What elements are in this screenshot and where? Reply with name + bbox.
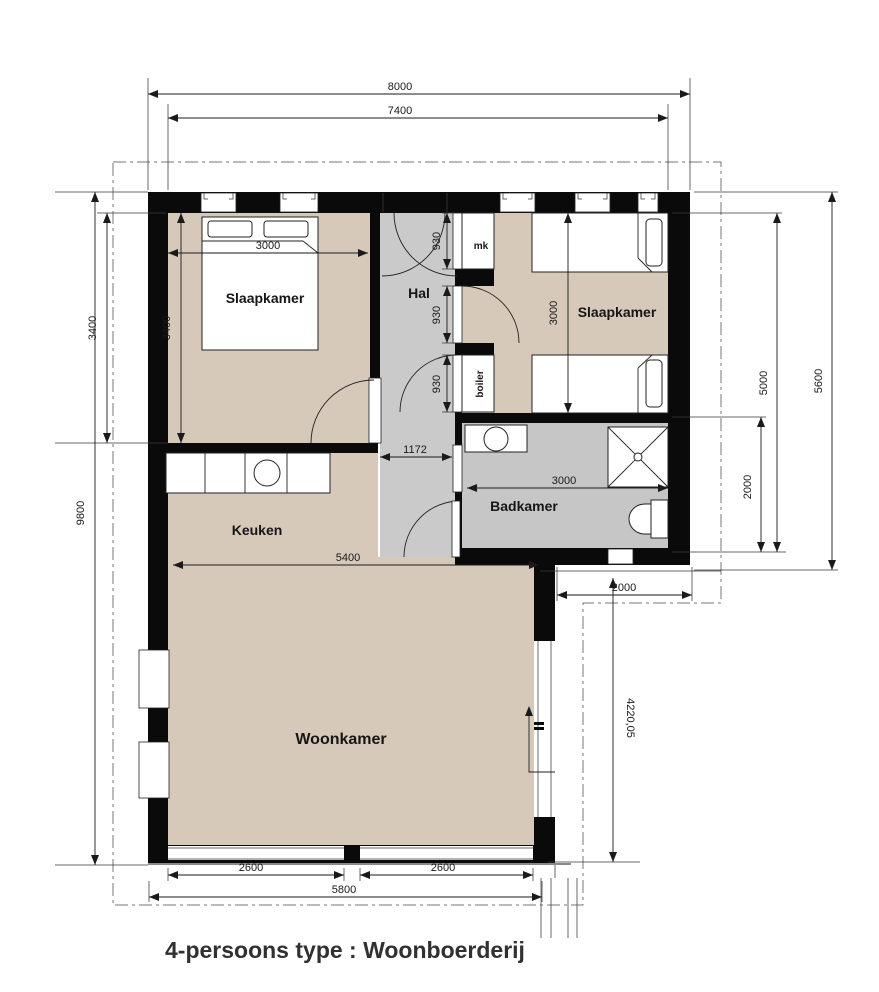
wall-bedroom-kitchen: [148, 443, 378, 453]
room-label-hall: Hal: [408, 285, 430, 301]
single-bed-bottom: [532, 355, 668, 413]
room-label-bathroom: Badkamer: [490, 498, 558, 514]
window-left-1: [139, 650, 169, 708]
dim-label-2600-left: 2600: [239, 862, 263, 874]
room-label-bedroom-right: Slaapkamer: [578, 304, 657, 320]
dim-label-3400-outer: 3400: [87, 316, 99, 340]
dim-label-5800: 5800: [332, 884, 356, 896]
kitchen-sink: [254, 460, 280, 486]
dim-label-3000-bath: 3000: [552, 475, 576, 487]
room-label-kitchen: Keuken: [232, 522, 283, 538]
window-top-2: [280, 193, 318, 212]
door-opening-bedroom-left: [369, 378, 381, 443]
window-top-4: [575, 193, 610, 212]
dim-label-5400: 5400: [336, 552, 360, 564]
dim-label-2600-right: 2600: [431, 862, 455, 874]
dim-label-930-2: 930: [431, 306, 443, 324]
sliding-door-tick-1: [534, 722, 544, 725]
wall-bathroom-bottom: [455, 548, 690, 565]
dim-label-5600: 5600: [813, 369, 825, 393]
plan-title: 4-persoons type : Woonboerderij: [165, 937, 525, 963]
dim-label-4220: 4220,05: [624, 698, 636, 738]
dim-label-3000-bedright: 3000: [548, 301, 560, 325]
bathroom-sink: [465, 425, 527, 452]
window-left-2: [139, 742, 169, 798]
dim-label-5000: 5000: [758, 371, 770, 395]
dim-label-1172: 1172: [403, 444, 427, 456]
dim-label-9800: 9800: [75, 501, 87, 525]
floor-plan-page: 8000 7400 9800 3400 3400 3000 930 930 93…: [0, 0, 879, 992]
dim-label-8000: 8000: [388, 81, 412, 93]
bathroom-rear-opening: [608, 549, 633, 564]
closet-label-boiler: boiler: [475, 370, 486, 397]
room-hall-floor: [380, 213, 455, 557]
door-opening-mk: [453, 213, 462, 269]
kitchen-counter: [166, 453, 330, 493]
dim-label-2000-bath: 2000: [742, 475, 754, 499]
wall-right-upper: [668, 192, 690, 565]
dim-label-2000-step: 2000: [612, 582, 636, 594]
dim-label-930-3: 930: [431, 375, 443, 393]
double-bed: [202, 217, 318, 350]
bathroom-door-leaf: [452, 501, 460, 557]
dim-label-3400-inner: 3400: [161, 316, 173, 340]
wall-closet-band-1: [455, 269, 494, 286]
door-opening-bedroom-right: [453, 286, 462, 343]
door-opening-bathroom: [453, 445, 462, 492]
dim-label-3000-bedleft: 3000: [256, 240, 280, 252]
sliding-door-tick-2: [534, 727, 544, 730]
shower: [608, 427, 668, 487]
room-label-living: Woonkamer: [295, 731, 386, 748]
wall-bedroom-hall: [370, 211, 380, 378]
dim-label-7400: 7400: [388, 105, 412, 117]
closet-label-mk: mk: [474, 241, 489, 252]
room-label-bedroom-left: Slaapkamer: [226, 290, 305, 306]
wall-bedroom-bathroom: [455, 413, 668, 423]
window-top-1: [201, 193, 236, 212]
wall-closet-band-2: [455, 343, 494, 355]
floor-plan-image: 8000 7400 9800 3400 3400 3000 930 930 93…: [0, 0, 879, 992]
dim-label-930-1: 930: [431, 232, 443, 250]
single-bed-top: [532, 213, 668, 272]
door-opening-boiler: [453, 355, 462, 412]
window-top-3: [500, 193, 535, 212]
